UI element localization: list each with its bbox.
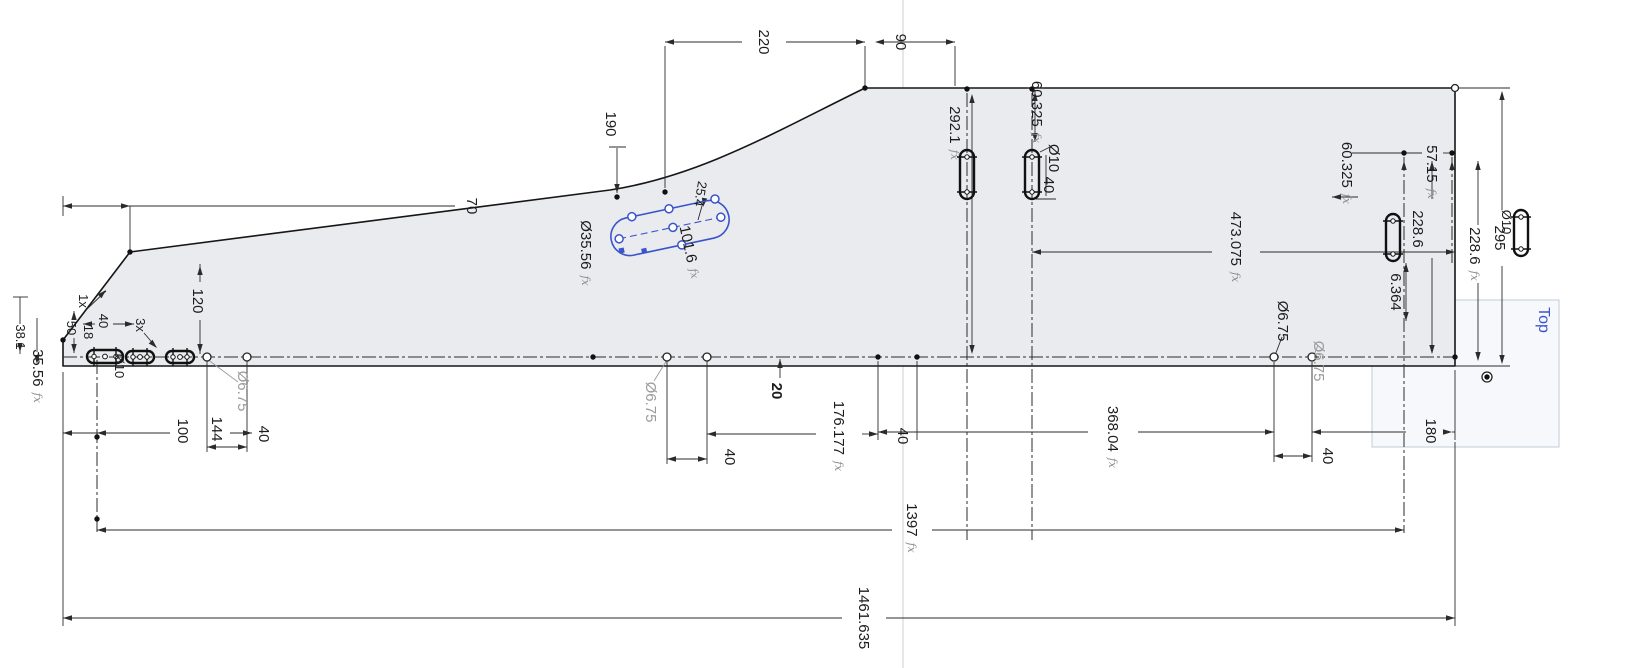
fx-driven-icon: fx: [906, 542, 919, 554]
dim-57.15[interactable]: 57.15fx: [1424, 145, 1441, 200]
cad-sketch-viewport: 701902209025.4Ø35.56fx101.6fx1201x501840…: [0, 0, 1625, 668]
dim-220[interactable]: 220: [756, 29, 773, 54]
dim-6.364-value[interactable]: 6.364: [1388, 273, 1405, 311]
sketch-point-constrained[interactable]: [641, 248, 647, 254]
hole-point[interactable]: [203, 353, 211, 361]
dim-dia10-l-value[interactable]: Ø10: [113, 354, 128, 379]
dim-18-value[interactable]: 18: [82, 325, 97, 339]
dim-90[interactable]: 90: [893, 34, 910, 51]
dim-228.6-a-value[interactable]: 228.6: [1410, 210, 1427, 248]
sketch-point[interactable]: [60, 337, 65, 342]
dim-40-d-value[interactable]: 40: [1041, 177, 1058, 194]
dim-dia35.56-value[interactable]: Ø35.56: [578, 220, 595, 269]
dim-dia10-m[interactable]: Ø10: [1046, 144, 1063, 172]
dim-60.325-l-value[interactable]: 60.325: [1029, 81, 1046, 127]
slot-point[interactable]: [131, 355, 135, 359]
dim-60.325-l[interactable]: 60.325fx: [1029, 81, 1046, 144]
sketch-point[interactable]: [1452, 354, 1457, 359]
note-3x-value[interactable]: 3x: [134, 318, 149, 332]
dim-18[interactable]: 18: [82, 325, 97, 339]
sketch-point[interactable]: [914, 354, 919, 359]
dim-144[interactable]: 144: [209, 416, 226, 441]
dim-dia6.75-b[interactable]: Ø6.75: [643, 382, 660, 423]
dim-6.364[interactable]: 6.364: [1388, 273, 1405, 311]
dim-dia35.56[interactable]: Ø35.56fx: [578, 220, 595, 286]
dim-38.1[interactable]: 38.1: [14, 324, 29, 349]
dim-368.04-value[interactable]: 368.04: [1105, 406, 1122, 452]
arrowhead: [707, 431, 716, 436]
sketch-point-constrained[interactable]: [619, 247, 625, 253]
slot-point[interactable]: [965, 190, 969, 194]
dim-1461.635[interactable]: 1461.635: [856, 587, 873, 650]
slot-center-point[interactable]: [138, 355, 143, 360]
dim-35.56[interactable]: 35.56fx: [30, 349, 47, 404]
dim-20-value[interactable]: 20: [769, 383, 786, 400]
dim-190[interactable]: 190: [603, 111, 620, 136]
sketch-point[interactable]: [590, 354, 595, 359]
dim-473.075-value[interactable]: 473.075: [1228, 212, 1245, 266]
sketch-point[interactable]: [614, 194, 619, 199]
fx-driven-icon: fx: [833, 460, 846, 472]
arrowhead: [946, 39, 955, 44]
arrowhead: [698, 456, 707, 461]
slot-point[interactable]: [1030, 190, 1034, 194]
dim-dia10-r[interactable]: Ø10: [1500, 210, 1515, 235]
sketch-point-unconstrained[interactable]: [627, 212, 636, 221]
fx-driven-icon: fx: [1107, 457, 1120, 469]
dim-40-e[interactable]: 40: [1320, 448, 1337, 465]
dim-1461.635-value[interactable]: 1461.635: [856, 587, 873, 650]
fx-driven-icon: fx: [32, 392, 45, 404]
arrowhead: [63, 615, 72, 620]
dim-38.1-value[interactable]: 38.1: [14, 324, 29, 349]
dim-40-c-value[interactable]: 40: [895, 428, 912, 445]
sketch-point-unconstrained[interactable]: [716, 212, 725, 221]
dim-50[interactable]: 50: [65, 321, 80, 335]
sketch-point[interactable]: [127, 249, 132, 254]
arrowhead: [1312, 429, 1321, 434]
note-1x-value[interactable]: 1x: [77, 294, 92, 308]
arrowhead: [1446, 615, 1455, 620]
dim-dia6.75-d-value[interactable]: Ø6.75: [1311, 341, 1328, 382]
arrowhead: [63, 203, 72, 208]
arrowhead: [207, 444, 216, 449]
dim-20[interactable]: 20: [769, 383, 786, 400]
arrowhead: [63, 430, 72, 435]
dim-176.177[interactable]: 176.177fx: [831, 401, 848, 472]
sketch-point[interactable]: [1484, 374, 1489, 379]
sketch-point-unconstrained[interactable]: [664, 204, 673, 213]
fx-driven-icon: fx: [1230, 271, 1243, 283]
fx-driven-icon: fx: [1031, 132, 1044, 144]
dim-40-a[interactable]: 40: [256, 426, 273, 443]
sketch-point[interactable]: [94, 434, 99, 439]
arrowhead: [667, 456, 676, 461]
dim-368.04[interactable]: 368.04fx: [1105, 406, 1122, 469]
sketch-point[interactable]: [862, 85, 867, 90]
slot-center-point[interactable]: [103, 354, 108, 359]
fx-driven-icon: fx: [1341, 193, 1354, 205]
part-profile[interactable]: [63, 88, 1455, 366]
dim-dia10-r-value[interactable]: Ø10: [1500, 210, 1515, 235]
arrowhead: [1475, 161, 1480, 170]
arrowhead: [1303, 453, 1312, 458]
dim-dia6.75-b-value[interactable]: Ø6.75: [643, 382, 660, 423]
dim-60.325-r[interactable]: 60.325fx: [1339, 142, 1356, 205]
dim-144-value[interactable]: 144: [209, 416, 226, 441]
dim-40-b-value[interactable]: 40: [722, 449, 739, 466]
dim-176.177-value[interactable]: 176.177: [831, 401, 848, 455]
dim-dia6.75-a[interactable]: Ø6.75: [235, 371, 252, 412]
dim-70[interactable]: 70: [464, 198, 481, 215]
arrowhead: [869, 431, 878, 436]
dim-190-value[interactable]: 190: [603, 111, 620, 136]
sketch-point[interactable]: [1401, 150, 1406, 155]
dim-228.6-b-value[interactable]: 228.6: [1467, 227, 1484, 265]
hole-point[interactable]: [1270, 353, 1278, 361]
dim-40-tl-value[interactable]: 40: [97, 314, 112, 328]
dim-dia6.75-d[interactable]: Ø6.75: [1311, 341, 1328, 382]
dim-35.56-value[interactable]: 35.56: [30, 349, 47, 387]
slot-center-point[interactable]: [178, 355, 183, 360]
hole-point[interactable]: [243, 353, 251, 361]
arrowhead: [1395, 527, 1404, 532]
slot-point[interactable]: [1519, 247, 1523, 251]
dim-dia10-m-value[interactable]: Ø10: [1046, 144, 1063, 172]
dim-dia6.75-c-value[interactable]: Ø6.75: [1275, 301, 1292, 342]
dim-292.1-value[interactable]: 292.1: [947, 106, 964, 144]
fx-driven-icon: fx: [1469, 270, 1482, 282]
arrowhead: [665, 39, 674, 44]
slot-point[interactable]: [92, 354, 96, 358]
hole-point[interactable]: [1452, 85, 1459, 92]
arrowhead: [97, 527, 106, 532]
slot-point[interactable]: [1391, 252, 1395, 256]
dim-90-value[interactable]: 90: [893, 34, 910, 51]
arrowhead: [1499, 91, 1504, 100]
dim-60.325-r-value[interactable]: 60.325: [1339, 142, 1356, 188]
arrowhead: [856, 39, 865, 44]
dim-292.1[interactable]: 292.1fx: [947, 106, 964, 161]
arrowhead: [238, 444, 247, 449]
dim-228.6-a[interactable]: 228.6: [1410, 210, 1427, 248]
dim-40-e-value[interactable]: 40: [1320, 448, 1337, 465]
dim-dia6.75-c[interactable]: Ø6.75: [1275, 301, 1292, 342]
dim-228.6-b[interactable]: 228.6fx: [1467, 227, 1484, 282]
dim-40-b[interactable]: 40: [722, 449, 739, 466]
arrowhead: [875, 39, 884, 44]
dim-57.15-value[interactable]: 57.15: [1424, 145, 1441, 183]
fx-driven-icon: fx: [1426, 188, 1439, 200]
dim-50-value[interactable]: 50: [65, 321, 80, 335]
dim-40-d[interactable]: 40: [1041, 177, 1058, 194]
dim-120[interactable]: 120: [190, 288, 207, 313]
top-plane-label-value[interactable]: Top: [1536, 307, 1553, 333]
slot-point[interactable]: [965, 155, 969, 159]
dim-473.075[interactable]: 473.075fx: [1228, 212, 1245, 283]
dim-180-value[interactable]: 180: [1423, 418, 1440, 443]
dim-120-value[interactable]: 120: [190, 288, 207, 313]
sketch-point[interactable]: [1449, 150, 1454, 155]
dim-1397[interactable]: 1397fx: [904, 503, 921, 553]
top-plane-label[interactable]: Top: [1536, 307, 1553, 333]
sketch-canvas: 701902209025.4Ø35.56fx101.6fx1201x501840…: [0, 0, 1625, 668]
dim-70-value[interactable]: 70: [464, 198, 481, 215]
slot-point[interactable]: [185, 355, 189, 359]
dim-dia6.75-a-value[interactable]: Ø6.75: [235, 371, 252, 412]
sketch-point[interactable]: [964, 86, 969, 91]
slot-point[interactable]: [1030, 155, 1034, 159]
sketch-point-unconstrained[interactable]: [614, 234, 623, 243]
dim-1397-value[interactable]: 1397: [904, 503, 921, 536]
dim-180[interactable]: 180: [1423, 418, 1440, 443]
arrowhead: [1274, 453, 1283, 458]
arrowhead: [71, 311, 76, 320]
sketch-point[interactable]: [875, 354, 880, 359]
hole-point[interactable]: [663, 353, 671, 361]
sketch-point[interactable]: [94, 516, 99, 521]
note-3x[interactable]: 3x: [134, 318, 149, 332]
slot-point[interactable]: [1391, 219, 1395, 223]
sketch-point[interactable]: [662, 189, 667, 194]
note-1x[interactable]: 1x: [77, 294, 92, 308]
sketch-point-unconstrained[interactable]: [710, 194, 719, 203]
arrowhead: [878, 429, 887, 434]
arrowhead: [121, 203, 130, 208]
slot-point[interactable]: [171, 355, 175, 359]
dim-40-c[interactable]: 40: [895, 428, 912, 445]
arrowhead: [243, 430, 252, 435]
slot-point[interactable]: [1519, 215, 1523, 219]
fx-driven-icon: fx: [580, 274, 593, 286]
dim-100[interactable]: 100: [175, 418, 192, 443]
dim-100-value[interactable]: 100: [175, 418, 192, 443]
dim-dia10-l[interactable]: Ø10: [113, 354, 128, 379]
fx-driven-icon: fx: [949, 149, 962, 161]
dim-220-value[interactable]: 220: [756, 29, 773, 54]
dim-40-a-value[interactable]: 40: [256, 426, 273, 443]
arrowhead: [1265, 429, 1274, 434]
slot-point[interactable]: [145, 355, 149, 359]
dim-40-tl[interactable]: 40: [97, 314, 112, 328]
hole-point[interactable]: [703, 353, 711, 361]
